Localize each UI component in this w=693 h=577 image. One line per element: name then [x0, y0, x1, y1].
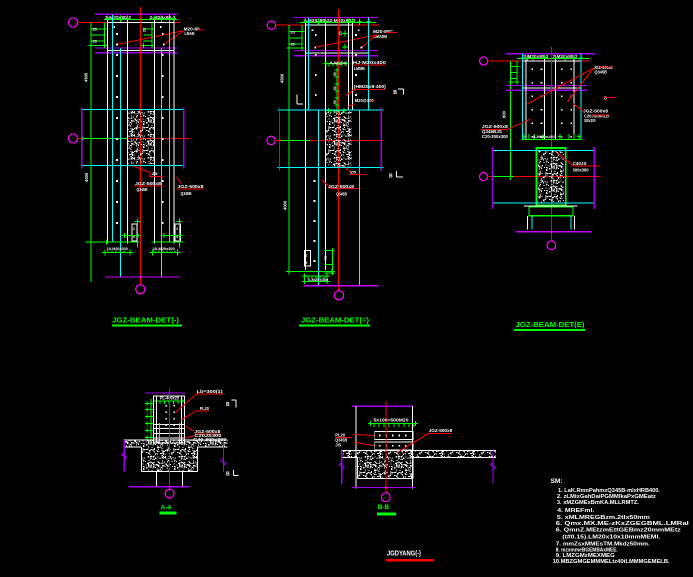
svg-text:50: 50: [333, 100, 337, 104]
svg-text:JGZ-BEAM-DET(=): JGZ-BEAM-DET(=): [301, 315, 370, 324]
svg-text:HJ-M20x400: HJ-M20x400: [353, 60, 387, 65]
svg-text:2: 2: [306, 254, 308, 258]
svg-text:6. Qmx.MX.ME-zKxZGEGBML.LMRal: 6. Qmx.MX.ME-zKxZGEGBML.LMRal: [556, 521, 690, 527]
svg-text:Q345B: Q345B: [595, 70, 608, 75]
svg-text:B-B: B-B: [378, 504, 390, 511]
svg-text:10.MBZGMGEMMMELtz40tLMMMGEMELB: 10.MBZGMGEMMMELtz40tLMMMGEMELB.: [553, 559, 670, 565]
svg-text:B: B: [389, 174, 393, 180]
svg-text:4500: 4500: [84, 72, 89, 82]
svg-text:25: 25: [350, 170, 357, 175]
svg-text:C40-300x300: C40-300x300: [193, 437, 227, 442]
svg-text:25: 25: [93, 40, 97, 44]
svg-text:M20@300: M20@300: [355, 98, 375, 103]
svg-text:2. zLMixGahDaiPGMMlkaPxGMEatz: 2. zLMixGahDaiPGMMlkaPxGMEatz: [557, 494, 656, 500]
svg-text:Q345B: Q345B: [336, 192, 347, 197]
svg-text:Q345B: Q345B: [181, 191, 192, 196]
svg-text:B: B: [604, 96, 607, 101]
svg-text:4-M20x400: 4-M20x400: [533, 134, 557, 139]
svg-text:4-M20x: 4-M20x: [330, 61, 348, 66]
svg-text:A-A: A-A: [161, 504, 173, 511]
svg-text:JGDYANG(-): JGDYANG(-): [387, 549, 421, 558]
svg-text:JGZ-500x8: JGZ-500x8: [135, 181, 162, 186]
svg-text:50: 50: [333, 72, 337, 76]
svg-text:JGZ-500x8: JGZ-500x8: [328, 184, 355, 189]
svg-text:6. QmnZ.MEtzmEttGEBmz20mmMEtz: 6. QmnZ.MEtzmEttGEBmz20mmMEtz: [556, 527, 681, 533]
svg-text:JGZ-500x8: JGZ-500x8: [429, 428, 453, 433]
svg-text:4000: 4000: [283, 200, 288, 210]
svg-text:JGZ-BEAM-DET(-): JGZ-BEAM-DET(-): [112, 315, 180, 324]
svg-text:B: B: [226, 402, 230, 408]
svg-text:6-M20x300: 6-M20x300: [308, 277, 329, 282]
svg-text:25: 25: [143, 28, 147, 32]
svg-text:600: 600: [502, 110, 507, 118]
svg-text:25: 25: [291, 31, 295, 35]
svg-text:50: 50: [333, 86, 337, 90]
svg-text:300x300: 300x300: [584, 118, 596, 123]
svg-text:JGZ-500x8: JGZ-500x8: [178, 184, 205, 189]
svg-text:75: 75: [324, 256, 328, 260]
svg-text:B: B: [226, 471, 230, 477]
svg-text:4. MREFml.: 4. MREFml.: [557, 508, 595, 514]
svg-text:25: 25: [93, 28, 97, 32]
svg-text:25: 25: [152, 171, 159, 176]
svg-text:2: 2: [176, 227, 178, 231]
svg-text:SM:: SM:: [551, 478, 563, 485]
svg-text:LMAB: LMAB: [185, 31, 195, 36]
svg-text:(HM20x8-400): (HM20x8-400): [354, 84, 387, 89]
svg-text:5x100=500M20: 5x100=500M20: [374, 418, 410, 423]
svg-text:5: 5: [306, 261, 308, 265]
svg-text:JGZ-BEAM-DET(E): JGZ-BEAM-DET(E): [516, 320, 586, 329]
svg-text:PL20: PL20: [200, 406, 210, 411]
svg-text:(t#0.15).LM20x10x10mmMEMl.: (t#0.15).LM20x10x10mmMEMl.: [562, 534, 660, 540]
svg-text:JS: JS: [335, 443, 341, 448]
svg-text:25: 25: [291, 43, 295, 47]
svg-text:4000: 4000: [84, 172, 89, 182]
svg-text:Q345B: Q345B: [137, 187, 148, 192]
svg-text:3. xMZGMExBmKA.MLLRMTZ.: 3. xMZGMExBmKA.MLLRMTZ.: [557, 500, 639, 506]
svg-text:C20-300x300: C20-300x300: [482, 134, 509, 139]
svg-text:C40JS: C40JS: [573, 161, 587, 166]
svg-text:2: 2: [133, 227, 135, 231]
svg-text:B: B: [393, 90, 397, 96]
svg-text:10-M20x300: 10-M20x300: [107, 246, 128, 251]
svg-text:4500: 4500: [280, 73, 285, 83]
svg-text:LMMB: LMMB: [354, 66, 365, 71]
svg-text:300x300: 300x300: [573, 167, 590, 172]
svg-text:10-M20x300: 10-M20x300: [153, 246, 175, 251]
